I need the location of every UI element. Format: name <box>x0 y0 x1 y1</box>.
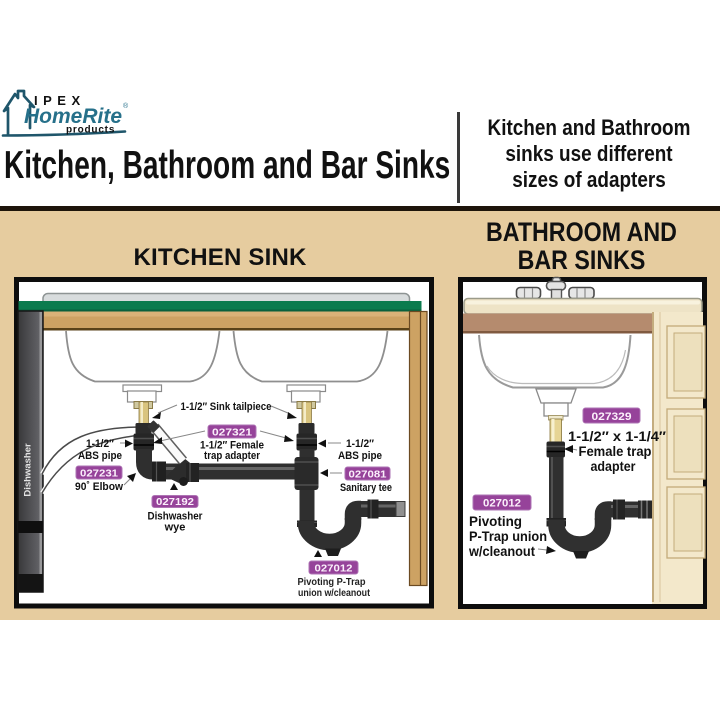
svg-text:ABS pipe: ABS pipe <box>78 450 122 462</box>
svg-text:027192: 027192 <box>156 497 194 508</box>
svg-text:1-1/2″: 1-1/2″ <box>86 438 115 450</box>
svg-text:1-1/2″: 1-1/2″ <box>346 438 375 450</box>
svg-text:w/cleanout: w/cleanout <box>468 543 535 559</box>
svg-text:Dishwasher: Dishwasher <box>23 443 34 497</box>
svg-text:027081: 027081 <box>349 470 387 481</box>
svg-text:products: products <box>66 125 115 136</box>
svg-text:ABS pipe: ABS pipe <box>338 450 382 462</box>
svg-text:Female trap: Female trap <box>579 444 652 459</box>
svg-text:®: ® <box>123 102 129 110</box>
svg-text:union w/cleanout: union w/cleanout <box>298 587 370 599</box>
svg-text:027321: 027321 <box>212 428 253 439</box>
svg-text:Sanitary tee: Sanitary tee <box>340 482 392 494</box>
svg-text:Pivoting: Pivoting <box>469 513 522 529</box>
svg-text:1-1/2″ x 1-1/4″: 1-1/2″ x 1-1/4″ <box>568 429 667 444</box>
svg-text:trap adapter: trap adapter <box>204 450 261 462</box>
svg-text:027231: 027231 <box>80 469 118 480</box>
svg-text:027329: 027329 <box>592 411 632 423</box>
svg-text:027012: 027012 <box>483 498 521 510</box>
svg-text:adapter: adapter <box>591 459 637 474</box>
svg-text:1-1/2″ Sink tailpiece: 1-1/2″ Sink tailpiece <box>181 401 272 413</box>
svg-text:027012: 027012 <box>315 564 353 575</box>
svg-text:P-Trap union: P-Trap union <box>469 528 547 544</box>
svg-text:90˚ Elbow: 90˚ Elbow <box>75 481 123 493</box>
svg-text:wye: wye <box>164 522 186 534</box>
